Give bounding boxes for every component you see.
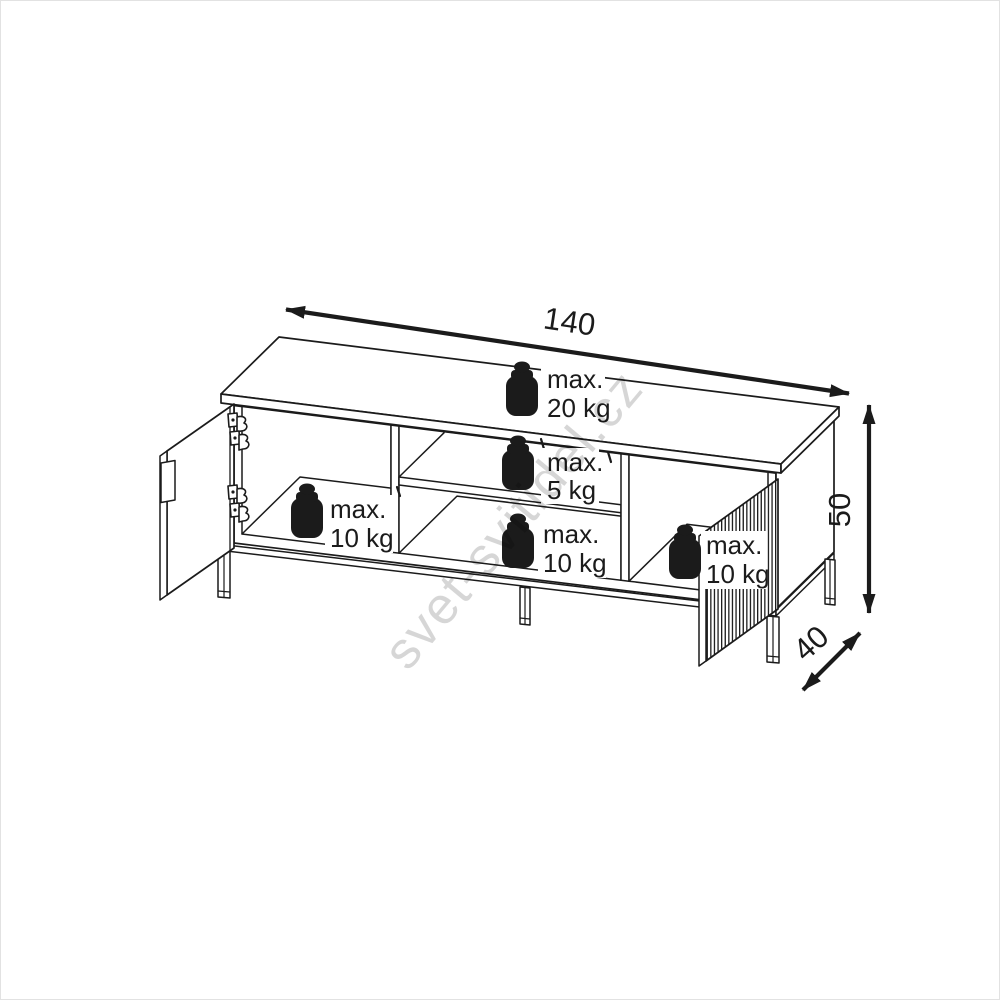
load-label-middle-bottom-line1: max. (543, 519, 599, 549)
tv-cabinet-dimension-diagram: max. 20 kg max. 5 kg max. 10 kg max. 10 … (1, 1, 1000, 1001)
load-label-right-line2: 10 kg (706, 559, 770, 589)
technical-drawing-page: max. 20 kg max. 5 kg max. 10 kg max. 10 … (0, 0, 1000, 1000)
height-dimension-label: 50 (822, 493, 857, 527)
door-handle (161, 461, 175, 503)
load-label-right-line1: max. (706, 530, 762, 560)
load-label-right: max. 10 kg (701, 530, 770, 589)
load-label-middle-bottom: max. 10 kg (538, 519, 607, 578)
dimension-depth: 40 (786, 619, 860, 690)
width-dimension-label: 140 (541, 300, 597, 342)
load-label-left-line1: max. (330, 494, 386, 524)
leg-front-right (767, 616, 779, 663)
leg-front-middle (520, 587, 530, 625)
leg-back-right (825, 559, 835, 605)
load-label-left: max. 10 kg (325, 494, 394, 553)
depth-dimension-label: 40 (786, 619, 835, 668)
partition-right (621, 454, 629, 581)
load-label-middle-bottom-line2: 10 kg (543, 548, 607, 578)
load-label-left-line2: 10 kg (330, 523, 394, 553)
